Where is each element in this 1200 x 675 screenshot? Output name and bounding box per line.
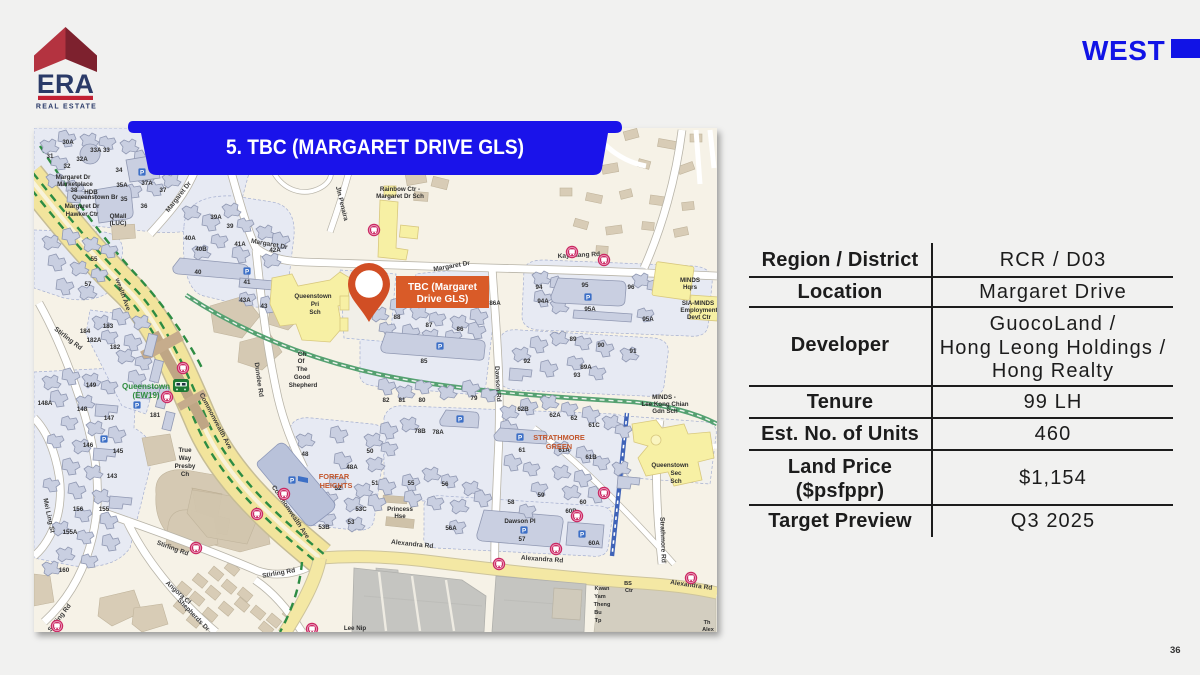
svg-text:Employment: Employment xyxy=(680,307,717,314)
svg-text:GREEN: GREEN xyxy=(546,442,572,451)
svg-text:True: True xyxy=(178,447,192,454)
svg-text:56: 56 xyxy=(442,481,449,488)
svg-text:78B: 78B xyxy=(414,428,426,435)
svg-text:55: 55 xyxy=(91,256,98,263)
svg-text:Yam: Yam xyxy=(594,594,606,600)
svg-text:32: 32 xyxy=(64,163,71,170)
svg-text:60A: 60A xyxy=(588,540,600,547)
svg-text:Shepherd: Shepherd xyxy=(289,382,318,389)
svg-text:32A: 32A xyxy=(76,156,88,163)
svg-text:REAL ESTATE: REAL ESTATE xyxy=(36,104,97,111)
svg-text:62: 62 xyxy=(571,415,578,422)
svg-text:58: 58 xyxy=(508,499,515,506)
svg-text:78A: 78A xyxy=(432,429,444,436)
svg-text:Margaret Dr: Margaret Dr xyxy=(65,203,100,210)
svg-text:86: 86 xyxy=(457,326,464,333)
svg-text:62A: 62A xyxy=(549,412,561,419)
svg-text:Tp: Tp xyxy=(595,618,602,624)
svg-text:85: 85 xyxy=(421,358,428,365)
svg-text:160: 160 xyxy=(59,567,70,574)
svg-text:(LUC): (LUC) xyxy=(110,220,127,227)
svg-text:36: 36 xyxy=(141,203,148,210)
svg-text:53: 53 xyxy=(348,519,355,526)
svg-text:Sec: Sec xyxy=(670,470,682,477)
svg-text:93: 93 xyxy=(574,372,581,379)
svg-text:MINDS -: MINDS - xyxy=(652,394,676,401)
svg-text:184: 184 xyxy=(80,328,91,335)
svg-text:61: 61 xyxy=(519,447,526,454)
svg-text:53C: 53C xyxy=(355,506,367,513)
svg-text:Sch: Sch xyxy=(309,309,321,316)
svg-text:Margaret Dr: Margaret Dr xyxy=(56,174,91,181)
svg-text:Queenstown: Queenstown xyxy=(294,293,331,300)
svg-text:40A: 40A xyxy=(184,235,196,242)
svg-text:Margaret Dr Sch: Margaret Dr Sch xyxy=(376,193,424,200)
svg-text:Lee Kong Chian: Lee Kong Chian xyxy=(641,401,688,408)
svg-text:95A: 95A xyxy=(642,316,654,323)
svg-text:Th: Th xyxy=(704,620,711,626)
svg-text:Devt Ctr: Devt Ctr xyxy=(687,314,712,321)
svg-text:Gdn Sch: Gdn Sch xyxy=(652,408,678,415)
svg-text:39: 39 xyxy=(227,223,234,230)
svg-text:38: 38 xyxy=(71,187,78,194)
svg-text:Hqrs: Hqrs xyxy=(683,284,698,291)
svg-text:5. TBC (MARGARET DRIVE GLS): 5. TBC (MARGARET DRIVE GLS) xyxy=(226,136,524,159)
svg-text:QMall: QMall xyxy=(110,213,127,220)
svg-text:Of: Of xyxy=(298,358,306,365)
svg-text:Dawson Pl: Dawson Pl xyxy=(504,518,536,525)
svg-text:81: 81 xyxy=(399,397,406,404)
svg-text:86A: 86A xyxy=(489,300,501,307)
svg-text:40: 40 xyxy=(195,269,202,276)
svg-text:90: 90 xyxy=(598,342,605,349)
svg-text:Rainbow Ctr -: Rainbow Ctr - xyxy=(380,186,420,193)
svg-text:89A: 89A xyxy=(580,364,592,371)
svg-text:30A: 30A xyxy=(62,139,74,146)
svg-text:STRATHMORE: STRATHMORE xyxy=(533,433,585,442)
svg-text:48A: 48A xyxy=(346,464,358,471)
svg-text:43A: 43A xyxy=(239,297,251,304)
svg-text:(EW19): (EW19) xyxy=(132,391,159,400)
svg-text:79: 79 xyxy=(471,395,478,402)
svg-text:48: 48 xyxy=(302,451,309,458)
svg-text:Queenstown: Queenstown xyxy=(122,382,170,391)
svg-text:Princess: Princess xyxy=(387,506,413,513)
svg-text:Pri: Pri xyxy=(311,301,320,308)
svg-text:183: 183 xyxy=(103,323,114,330)
svg-text:145: 145 xyxy=(113,448,124,455)
svg-text:33A 33: 33A 33 xyxy=(90,147,110,154)
svg-text:94: 94 xyxy=(536,284,543,291)
svg-text:Ctr: Ctr xyxy=(625,588,634,594)
svg-text:Good: Good xyxy=(294,374,310,381)
svg-text:SIA-MINDS: SIA-MINDS xyxy=(682,300,714,307)
svg-text:92: 92 xyxy=(524,358,531,365)
svg-text:37: 37 xyxy=(160,187,167,194)
svg-text:61B: 61B xyxy=(585,454,597,461)
svg-text:51: 51 xyxy=(372,480,379,487)
svg-text:57: 57 xyxy=(85,281,92,288)
svg-text:55: 55 xyxy=(408,480,415,487)
svg-text:95A: 95A xyxy=(584,306,596,313)
svg-text:146: 146 xyxy=(83,442,94,449)
svg-text:148: 148 xyxy=(77,406,88,413)
svg-text:62B: 62B xyxy=(517,406,529,413)
svg-text:87: 87 xyxy=(426,322,433,329)
svg-text:88: 88 xyxy=(394,314,401,321)
svg-text:148A: 148A xyxy=(38,400,53,407)
svg-text:89: 89 xyxy=(570,336,577,343)
svg-text:60: 60 xyxy=(580,499,587,506)
svg-text:37A: 37A xyxy=(141,180,153,187)
svg-text:96: 96 xyxy=(628,284,635,291)
svg-text:BS: BS xyxy=(624,581,632,587)
svg-text:TBC (Margaret: TBC (Margaret xyxy=(408,282,478,293)
svg-text:Ch: Ch xyxy=(298,351,306,358)
svg-text:91: 91 xyxy=(630,348,637,355)
svg-text:40B: 40B xyxy=(195,246,207,253)
svg-text:143: 143 xyxy=(107,473,118,480)
svg-text:Sch: Sch xyxy=(670,478,682,485)
svg-text:Bu: Bu xyxy=(594,610,602,616)
svg-text:FORFAR: FORFAR xyxy=(319,472,350,481)
svg-text:94A: 94A xyxy=(537,298,549,305)
svg-text:Presby: Presby xyxy=(175,463,196,470)
svg-text:56A: 56A xyxy=(445,525,457,532)
svg-text:182A: 182A xyxy=(87,337,102,344)
svg-text:The: The xyxy=(296,366,308,373)
svg-text:155: 155 xyxy=(99,506,110,513)
svg-text:41: 41 xyxy=(244,279,251,286)
svg-text:156: 156 xyxy=(73,506,84,513)
svg-text:155A: 155A xyxy=(63,529,78,536)
svg-text:Queenstown: Queenstown xyxy=(651,462,688,469)
svg-text:41A: 41A xyxy=(234,241,246,248)
svg-text:Ch: Ch xyxy=(181,471,189,478)
svg-text:82: 82 xyxy=(383,397,390,404)
svg-text:61C: 61C xyxy=(588,422,600,429)
svg-text:MINDS: MINDS xyxy=(680,277,700,284)
svg-text:149: 149 xyxy=(86,382,97,389)
svg-text:Alex: Alex xyxy=(702,627,715,632)
svg-text:Lee Nip: Lee Nip xyxy=(344,625,367,632)
svg-text:Kwan: Kwan xyxy=(595,586,611,592)
svg-text:Hse: Hse xyxy=(394,513,406,520)
svg-text:35: 35 xyxy=(121,196,128,203)
svg-text:59: 59 xyxy=(538,492,545,499)
svg-text:50: 50 xyxy=(367,448,374,455)
svg-text:39A: 39A xyxy=(210,214,222,221)
svg-text:35A: 35A xyxy=(116,182,128,189)
svg-text:Queenstown Br: Queenstown Br xyxy=(72,194,118,201)
svg-text:95: 95 xyxy=(582,282,589,289)
svg-text:Way: Way xyxy=(179,455,192,462)
svg-text:Marketplace: Marketplace xyxy=(57,181,93,188)
svg-text:Hawker Ctr: Hawker Ctr xyxy=(66,211,99,218)
svg-text:Drive GLS): Drive GLS) xyxy=(417,294,469,305)
svg-text:Theng: Theng xyxy=(594,602,611,608)
svg-text:HEIGHTS: HEIGHTS xyxy=(320,481,353,490)
svg-text:182: 182 xyxy=(110,344,121,351)
svg-text:ERA: ERA xyxy=(37,69,94,99)
svg-text:181: 181 xyxy=(150,412,161,419)
svg-text:80: 80 xyxy=(419,397,426,404)
svg-text:31: 31 xyxy=(47,153,54,160)
svg-text:57: 57 xyxy=(519,536,526,543)
svg-text:53B: 53B xyxy=(318,524,330,531)
svg-text:43: 43 xyxy=(261,303,268,310)
svg-text:147: 147 xyxy=(104,415,115,422)
